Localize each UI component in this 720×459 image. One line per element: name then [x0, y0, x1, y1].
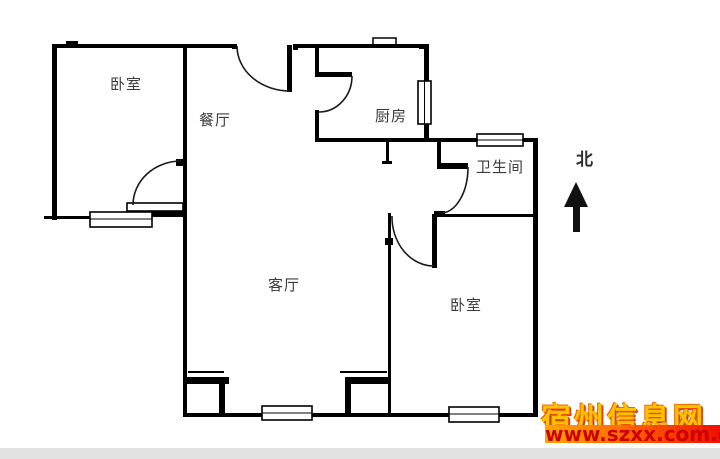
door-arc-bathroom	[441, 167, 468, 213]
wall	[183, 44, 237, 48]
wall	[219, 379, 225, 415]
wall	[437, 214, 534, 217]
window-balcony	[262, 406, 312, 420]
floor-plan-canvas: 卧室 餐厅 厨房 卫生间 客厅 卧室 北	[0, 0, 720, 459]
wall	[424, 44, 429, 85]
north-arrow-icon	[564, 182, 588, 232]
wall	[318, 44, 429, 48]
room-label-bedroom-bottom-right: 卧室	[450, 296, 482, 314]
wall-tick	[382, 161, 392, 164]
room-label-bedroom-top-left: 卧室	[110, 75, 142, 93]
windows	[90, 81, 523, 422]
watermark-site-name: 宿州信息网	[541, 394, 719, 428]
wall	[533, 141, 538, 417]
door-arc-bedroom1	[133, 161, 181, 205]
wall	[52, 44, 57, 220]
window-bedroom-bottom-right	[449, 407, 499, 422]
wall-tick	[66, 41, 78, 45]
wall	[345, 377, 389, 384]
wall	[439, 138, 479, 142]
watermark-url-bar: www.szxx.com.cn	[545, 425, 720, 443]
wall	[295, 44, 318, 48]
watermark-url-text: www.szxx.com.cn	[545, 425, 720, 443]
bedroom1-door-leaf	[127, 203, 183, 211]
bedroom-door-leaf	[432, 214, 437, 268]
compass-north-label: 北	[576, 150, 593, 170]
wall-notch	[373, 38, 396, 45]
room-label-dining: 餐厅	[199, 111, 231, 129]
wall	[315, 44, 319, 76]
kitchen-door-leaf	[315, 72, 352, 77]
wall	[188, 371, 224, 373]
entry-door-leaf	[287, 45, 292, 92]
bottom-gray-strip	[0, 448, 720, 459]
wall	[345, 379, 351, 415]
wall	[315, 110, 319, 142]
window-bedroom-top-left	[90, 212, 152, 227]
wall	[183, 44, 187, 417]
bathroom-door-leaf	[437, 163, 468, 169]
wall	[315, 138, 439, 142]
door-stop-tick	[385, 238, 393, 245]
window-bathroom	[477, 134, 523, 146]
wall	[340, 371, 387, 373]
walls	[44, 41, 538, 417]
door-arc-bedroom2	[392, 216, 434, 266]
door-arc-kitchen	[319, 76, 352, 112]
wall	[44, 216, 92, 219]
door-hinge-tick	[176, 159, 183, 166]
window-kitchen	[418, 81, 431, 124]
floor-plan-image: 卧室 餐厅 厨房 卫生间 客厅 卧室 北 宿州信息网 www.szxx.com.…	[0, 0, 720, 459]
room-label-kitchen: 厨房	[375, 107, 407, 125]
room-label-bathroom: 卫生间	[476, 158, 524, 176]
door-arc-entry	[237, 46, 290, 91]
room-label-living: 客厅	[268, 276, 300, 294]
wall	[386, 142, 389, 163]
